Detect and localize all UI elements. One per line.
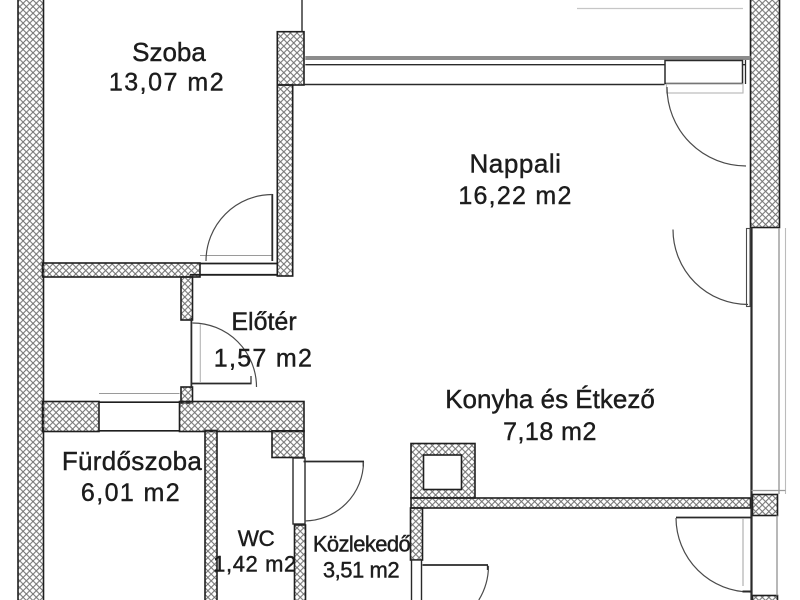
svg-text:Konyha és Étkező: Konyha és Étkező <box>445 384 655 414</box>
svg-text:16,22 m2: 16,22 m2 <box>458 182 572 210</box>
svg-text:WC: WC <box>238 526 275 551</box>
svg-text:7,18 m2: 7,18 m2 <box>503 418 597 446</box>
svg-text:Fürdőszoba: Fürdőszoba <box>62 446 203 476</box>
svg-text:1,57 m2: 1,57 m2 <box>214 345 313 373</box>
svg-text:1,42 m2: 1,42 m2 <box>213 552 297 577</box>
svg-text:Közlekedő: Közlekedő <box>313 532 411 557</box>
svg-text:6,01 m2: 6,01 m2 <box>81 479 181 507</box>
svg-text:Nappali: Nappali <box>469 149 561 179</box>
svg-text:13,07 m2: 13,07 m2 <box>109 69 225 97</box>
svg-text:3,51 m2: 3,51 m2 <box>323 558 400 583</box>
svg-text:Előtér: Előtér <box>231 308 296 336</box>
svg-text:Szoba: Szoba <box>132 37 206 67</box>
